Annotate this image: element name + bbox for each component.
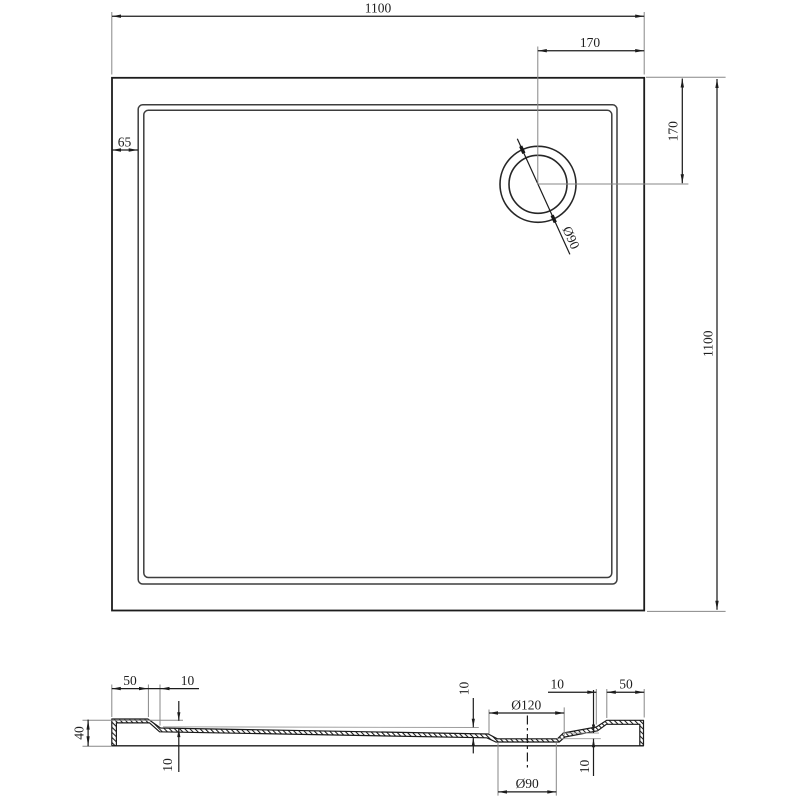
svg-text:50: 50 xyxy=(619,676,633,691)
svg-text:Ø120: Ø120 xyxy=(511,697,541,712)
svg-text:170: 170 xyxy=(580,35,601,50)
svg-text:40: 40 xyxy=(72,726,87,740)
svg-text:65: 65 xyxy=(118,134,132,149)
svg-text:10: 10 xyxy=(160,758,175,772)
svg-text:1100: 1100 xyxy=(701,330,716,357)
svg-text:1100: 1100 xyxy=(365,1,392,16)
svg-text:170: 170 xyxy=(665,121,680,142)
svg-text:10: 10 xyxy=(457,682,472,696)
svg-text:10: 10 xyxy=(181,673,195,688)
svg-text:50: 50 xyxy=(123,673,137,688)
svg-text:10: 10 xyxy=(577,760,592,774)
svg-text:10: 10 xyxy=(550,676,564,691)
svg-text:Ø90: Ø90 xyxy=(516,776,539,791)
